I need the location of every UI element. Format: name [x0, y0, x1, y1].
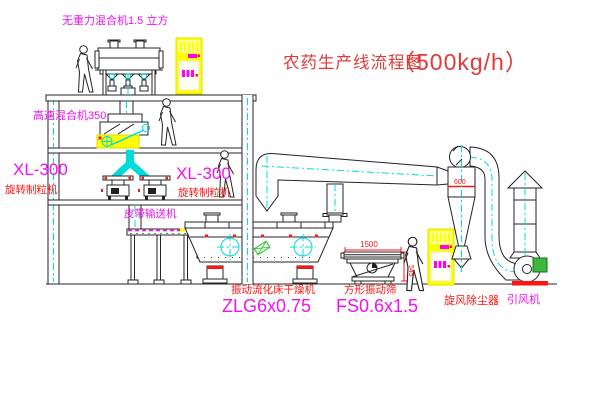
cyclone-diameter-dim: 600	[454, 179, 466, 186]
feed-y-chute	[114, 150, 147, 178]
screen-height-dim: 545	[407, 265, 414, 277]
high-speed-mixer-label: 高速混合机350	[33, 108, 106, 122]
dryer-model-label: ZLG6x0.75	[222, 296, 311, 316]
high-speed-mixer	[97, 101, 150, 148]
rotary-granulator-right	[138, 176, 170, 200]
fan-name-label: 引风机	[507, 292, 540, 306]
process-flow-diagram: 无重力混合机1.5 立方 高速混合机350 XL-300 旋转制粒机 XL-30…	[0, 0, 600, 403]
belt-conveyor-label: 皮带输送机	[124, 207, 177, 220]
cyclone-name-label: 旋风除尘器	[444, 293, 499, 307]
gravity-free-mixer	[95, 40, 163, 95]
exhaust-duct	[256, 153, 448, 211]
granulator-left-name: 旋转制粒机	[5, 183, 58, 196]
fluid-bed-dryer	[185, 213, 343, 283]
worker-figure	[159, 99, 176, 145]
worker-figure	[76, 46, 93, 92]
screen-name-label: 方形振动筛	[344, 283, 397, 296]
gravity-mixer-label: 无重力混合机1.5 立方	[62, 13, 168, 27]
granulator-mid-name: 旋转制粒机	[178, 186, 231, 199]
drawing-title: 农药生产线流程图 （500kg/h）	[283, 49, 529, 75]
rotary-granulator-left	[101, 176, 133, 200]
induced-draft-fan	[512, 256, 548, 286]
control-cabinet	[176, 38, 202, 94]
dryer-name-label: 振动流化床干燥机	[231, 283, 315, 296]
building-right-column	[242, 95, 253, 284]
cad-drawing-canvas: 无重力混合机1.5 立方 高速混合机350 XL-300 旋转制粒机 XL-30…	[0, 0, 600, 403]
screen-model-label: FS0.6x1.5	[336, 296, 418, 316]
control-cabinet	[428, 229, 454, 285]
worker-figure	[404, 237, 424, 290]
cyclone-separator	[448, 145, 521, 280]
title-capacity: （500kg/h）	[392, 49, 529, 75]
dryer-exhaust-riser	[323, 184, 347, 217]
granulator-left-model: XL-300	[13, 160, 68, 179]
screen-length-dim: 1500	[360, 240, 378, 249]
granulator-mid-model: XL-300	[176, 164, 231, 183]
square-vibrating-screen	[341, 247, 407, 284]
exhaust-stack	[508, 171, 542, 258]
